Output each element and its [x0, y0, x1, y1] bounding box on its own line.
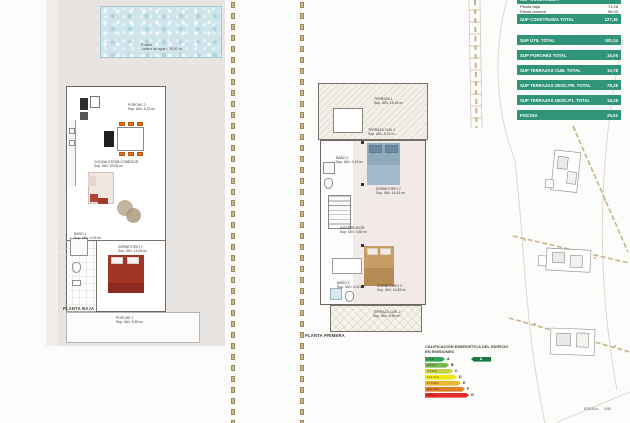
- bed-pillow: [385, 145, 398, 153]
- sofa-pillow: [98, 198, 108, 204]
- energy-range: 11,6-17,9: [425, 375, 439, 379]
- toilet: [324, 178, 333, 189]
- room-label-cocina: COCINA-ESTAR-COMEDOR Sup. Útil= 39,05 m²: [94, 160, 138, 169]
- bed-blanket: [367, 165, 400, 185]
- room-area: Sup. Útil= 39,05 m²: [94, 164, 138, 168]
- floor-title-planta-baja: PLANTA BAJA: [63, 306, 94, 311]
- energy-bar-c: 7,5-11,6: [425, 369, 453, 374]
- energy-letter: E: [463, 381, 465, 385]
- dining-chair: [119, 152, 125, 156]
- energy-range: 7,5-11,6: [425, 369, 437, 373]
- energy-bar-a: < 4,6: [425, 357, 445, 362]
- energy-letter: A: [447, 357, 450, 361]
- energy-range: ≥ 45,2: [425, 393, 435, 397]
- sofa-pillow: [90, 194, 98, 202]
- table-total-row: SUP TERRAZAS CUB. TOTAL 10,78: [517, 65, 621, 75]
- site-house-footprints: [538, 149, 595, 355]
- bed-pillow: [127, 257, 139, 264]
- bed-blanket: [108, 283, 144, 293]
- energy-bar-d: 11,6-17,9: [425, 375, 457, 380]
- round-rug: [126, 208, 141, 223]
- sofa-cushion: [88, 176, 96, 186]
- table-total-row: SUP PORCHES TOTAL 16,05: [517, 50, 621, 60]
- energy-range: 4,6-7,5: [425, 363, 436, 367]
- closet: [332, 258, 362, 274]
- row-label: SUP TERRAZAS CUB. TOTAL: [520, 68, 581, 73]
- row-label: SUP TERRAZAS DESC.P1. TOTAL: [520, 98, 590, 103]
- row-value: 18,28: [607, 98, 618, 103]
- room-label-bano2: BAÑO 2 Sup. Útil= 4,23 m²: [336, 156, 363, 165]
- room-area: Sup. Útil= 4,02 m²: [337, 285, 364, 289]
- table-total-row: SUP TERRAZAS DESC.P1. TOTAL 18,28: [517, 95, 621, 105]
- energy-rating-chart: CALIFICACIÓN ENERGÉTICA DEL EDIFICIO EN …: [425, 345, 537, 399]
- row-label: SUP TERRAZAS DESC.PB. TOTAL: [520, 83, 591, 88]
- roof-access-structure: [333, 108, 363, 133]
- room-area: Sup. Útil= 5,23 m²: [368, 132, 396, 136]
- room-label-distribuidor: DISTRIBUIDOR Sup. Útil= 3,80 m²: [340, 226, 367, 235]
- energy-letter: B: [451, 363, 454, 367]
- room-label-bano1: BAÑO 1 Sup. Útil= 4,05 m²: [74, 232, 101, 241]
- row-value: 78,38: [607, 83, 618, 88]
- room-label-dormitorio3: DORMITORIO 3 Sup. Útil= 14,83 m²: [377, 284, 406, 293]
- room-area: Sup. Útil= 9,83 m²: [116, 320, 143, 324]
- energy-chart-subtitle: EN EMISIONES: [425, 350, 537, 355]
- row-label: SUP ÚTIL TOTAL: [520, 38, 555, 43]
- room-area: Sup. Útil= 4,23 m²: [336, 160, 363, 164]
- bed-pillow: [367, 248, 378, 255]
- table-total-row: SUP TERRAZAS DESC.PB. TOTAL 78,38: [517, 80, 621, 90]
- laundry-unit: [80, 112, 88, 120]
- room-label-terrazacub1: TERRAZA CUB. 1 Sup. Útil= 5,23 m²: [368, 128, 396, 137]
- room-area: Sup. Útil= 18,28 m²: [374, 101, 403, 105]
- kitchen-island: [104, 131, 114, 147]
- row-value: 100,24: [605, 38, 618, 43]
- room-label-terrazacub2: TERRAZA CUB. 2 Sup. Útil= 5,55 m²: [373, 310, 401, 319]
- room-label-dormitorio1: DORMITORIO 1 Sup. Útil= 14,05 m²: [118, 245, 147, 254]
- energy-bar-b: 4,6-7,5: [425, 363, 449, 368]
- row-value: 16,05: [607, 53, 618, 58]
- row-value: 25,92: [607, 113, 618, 118]
- table-total-row: SUP ÚTIL TOTAL 100,24: [517, 35, 621, 45]
- room-area: Sup. Útil= 14,83 m²: [377, 288, 406, 292]
- energy-letter: C: [455, 369, 458, 373]
- energy-range: 17,9-36,2: [425, 381, 439, 385]
- room-area: Sup. Útil= 5,55 m²: [373, 314, 401, 318]
- energy-bar-row: 7,5-11,6 C: [425, 369, 537, 374]
- room-label-porche2: PORCHE 2 Sup. Útil= 6,22 m²: [128, 103, 155, 112]
- energy-bars: < 4,6 A 4,6-7,5 B 7,5-11,6 C 11,6-17,9 D…: [425, 357, 537, 398]
- row-label: SUP CONSTRUIDA TOTAL: [520, 17, 574, 22]
- door-jamb: [361, 183, 364, 186]
- boundary-marker-chain: [231, 0, 236, 423]
- sink: [72, 280, 81, 286]
- swimming-pool: Piscina Lámina de agua = 25,92 m²: [100, 6, 222, 58]
- bed-pillow: [380, 248, 391, 255]
- row-label: SUP PORCHES TOTAL: [520, 53, 567, 58]
- dining-chair: [128, 122, 134, 126]
- bed-pillow: [369, 145, 382, 153]
- table-header-label: SUP CONSTRUIDA: [520, 0, 559, 2]
- interior-wall: [96, 240, 97, 311]
- energy-bar-g: ≥ 45,2: [425, 393, 469, 398]
- toilet: [345, 291, 354, 302]
- laundry-unit: [80, 98, 88, 110]
- toilet: [72, 262, 81, 273]
- dining-table: [117, 127, 144, 151]
- room-label-bano3: BAÑO 3 Sup. Útil= 4,02 m²: [337, 281, 364, 290]
- staircase: [328, 195, 351, 229]
- row-value: 127,30: [605, 17, 618, 22]
- floor-title-planta-primera: PLANTA PRIMERA: [305, 333, 345, 338]
- door-jamb: [361, 141, 364, 144]
- boundary-marker-chain: [300, 0, 305, 423]
- dining-chair: [137, 152, 143, 156]
- plot-edge-strip: [46, 0, 58, 346]
- energy-rating-marker: A: [471, 357, 491, 362]
- dining-chair: [119, 122, 125, 126]
- energy-range: < 4,6: [425, 357, 433, 361]
- energy-bar-row: ≥ 45,2 G: [425, 393, 537, 398]
- energy-bar-row: 17,9-36,2 E: [425, 381, 537, 386]
- dining-chair: [128, 152, 134, 156]
- room-area: Sup. Útil= 14,05 m²: [118, 249, 147, 253]
- door-jamb: [361, 244, 364, 247]
- kitchen-appliance: [69, 128, 75, 134]
- energy-range: 36,2-45,2: [425, 387, 439, 391]
- pool-area: Lámina de agua = 25,92 m²: [141, 47, 183, 51]
- energy-bar-e: 17,9-36,2: [425, 381, 461, 386]
- shower: [323, 162, 335, 174]
- bed-pillow: [111, 257, 123, 264]
- kitchen-appliance: [69, 140, 75, 146]
- room-area: Sup. Útil= 3,80 m²: [340, 230, 367, 234]
- plan-sheet: Piscina Lámina de agua = 25,92 m² PORCHE…: [0, 0, 630, 423]
- energy-letter: G: [471, 393, 474, 397]
- room-area: Sup. Útil= 6,22 m²: [128, 107, 155, 111]
- energy-bar-row: 36,2-45,2 F: [425, 387, 537, 392]
- driveway-ladder: [469, 0, 482, 128]
- row-value: 10,78: [607, 68, 618, 73]
- room-area: Sup. Útil= 4,05 m²: [74, 236, 101, 240]
- pool-label: Piscina Lámina de agua = 25,92 m²: [141, 43, 183, 52]
- scale-label: ESCALA 1/50: [584, 407, 611, 411]
- room-label-porche1: PORCHE 1 Sup. Útil= 9,83 m²: [116, 316, 143, 325]
- washing-machine: [90, 96, 100, 108]
- dining-chair: [137, 122, 143, 126]
- table-total-row: PISCINA 25,92: [517, 110, 621, 120]
- table-total-row: SUP CONSTRUIDA TOTAL 127,30: [517, 14, 621, 24]
- room-area: Sup. Útil= 16,13 m²: [376, 191, 405, 195]
- room-label-dormitorio2: DORMITORIO 2 Sup. Útil= 16,13 m²: [376, 187, 405, 196]
- row-label: PISCINA: [520, 113, 538, 118]
- room-label-terraza1: TERRAZA 1 Sup. Útil= 18,28 m²: [374, 97, 403, 106]
- energy-bar-f: 36,2-45,2: [425, 387, 465, 392]
- energy-bar-row: 11,6-17,9 D: [425, 375, 537, 380]
- energy-bar-row: 4,6-7,5 B: [425, 363, 537, 368]
- energy-letter: D: [459, 375, 462, 379]
- energy-letter: F: [467, 387, 469, 391]
